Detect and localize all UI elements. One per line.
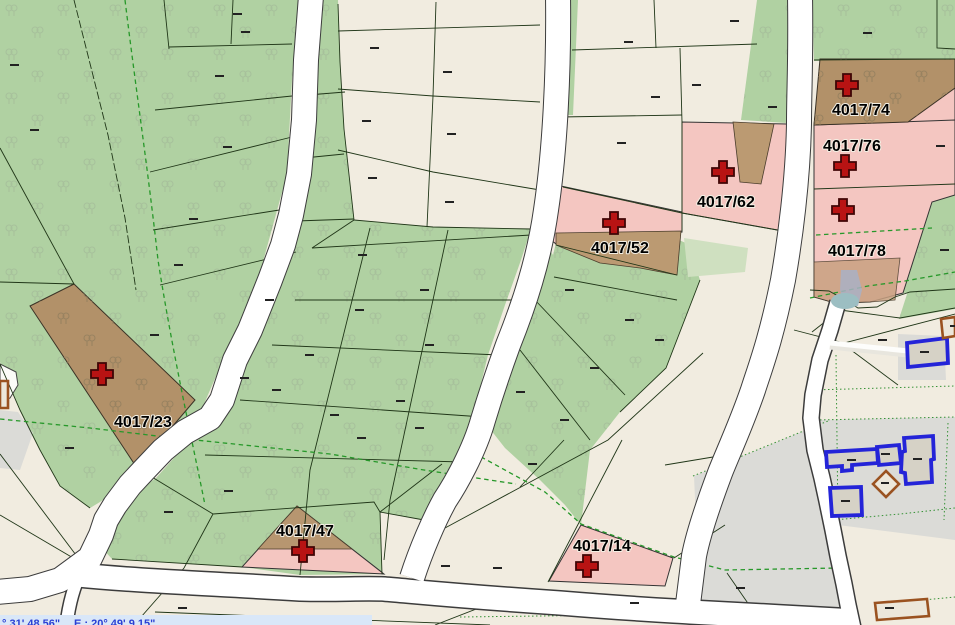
svg-text:4017/74: 4017/74 xyxy=(832,102,890,119)
svg-text:4017/62: 4017/62 xyxy=(697,194,755,211)
svg-text:4017/76: 4017/76 xyxy=(823,138,881,155)
svg-text:4017/14: 4017/14 xyxy=(573,538,631,555)
svg-text:E : 20° 49' 9.15": E : 20° 49' 9.15" xyxy=(74,618,155,625)
svg-text:° 31' 48.56": ° 31' 48.56" xyxy=(2,618,60,625)
svg-text:4017/52: 4017/52 xyxy=(591,240,649,257)
svg-text:4017/23: 4017/23 xyxy=(114,414,172,431)
svg-text:4017/47: 4017/47 xyxy=(276,523,334,540)
svg-text:4017/78: 4017/78 xyxy=(828,243,886,260)
